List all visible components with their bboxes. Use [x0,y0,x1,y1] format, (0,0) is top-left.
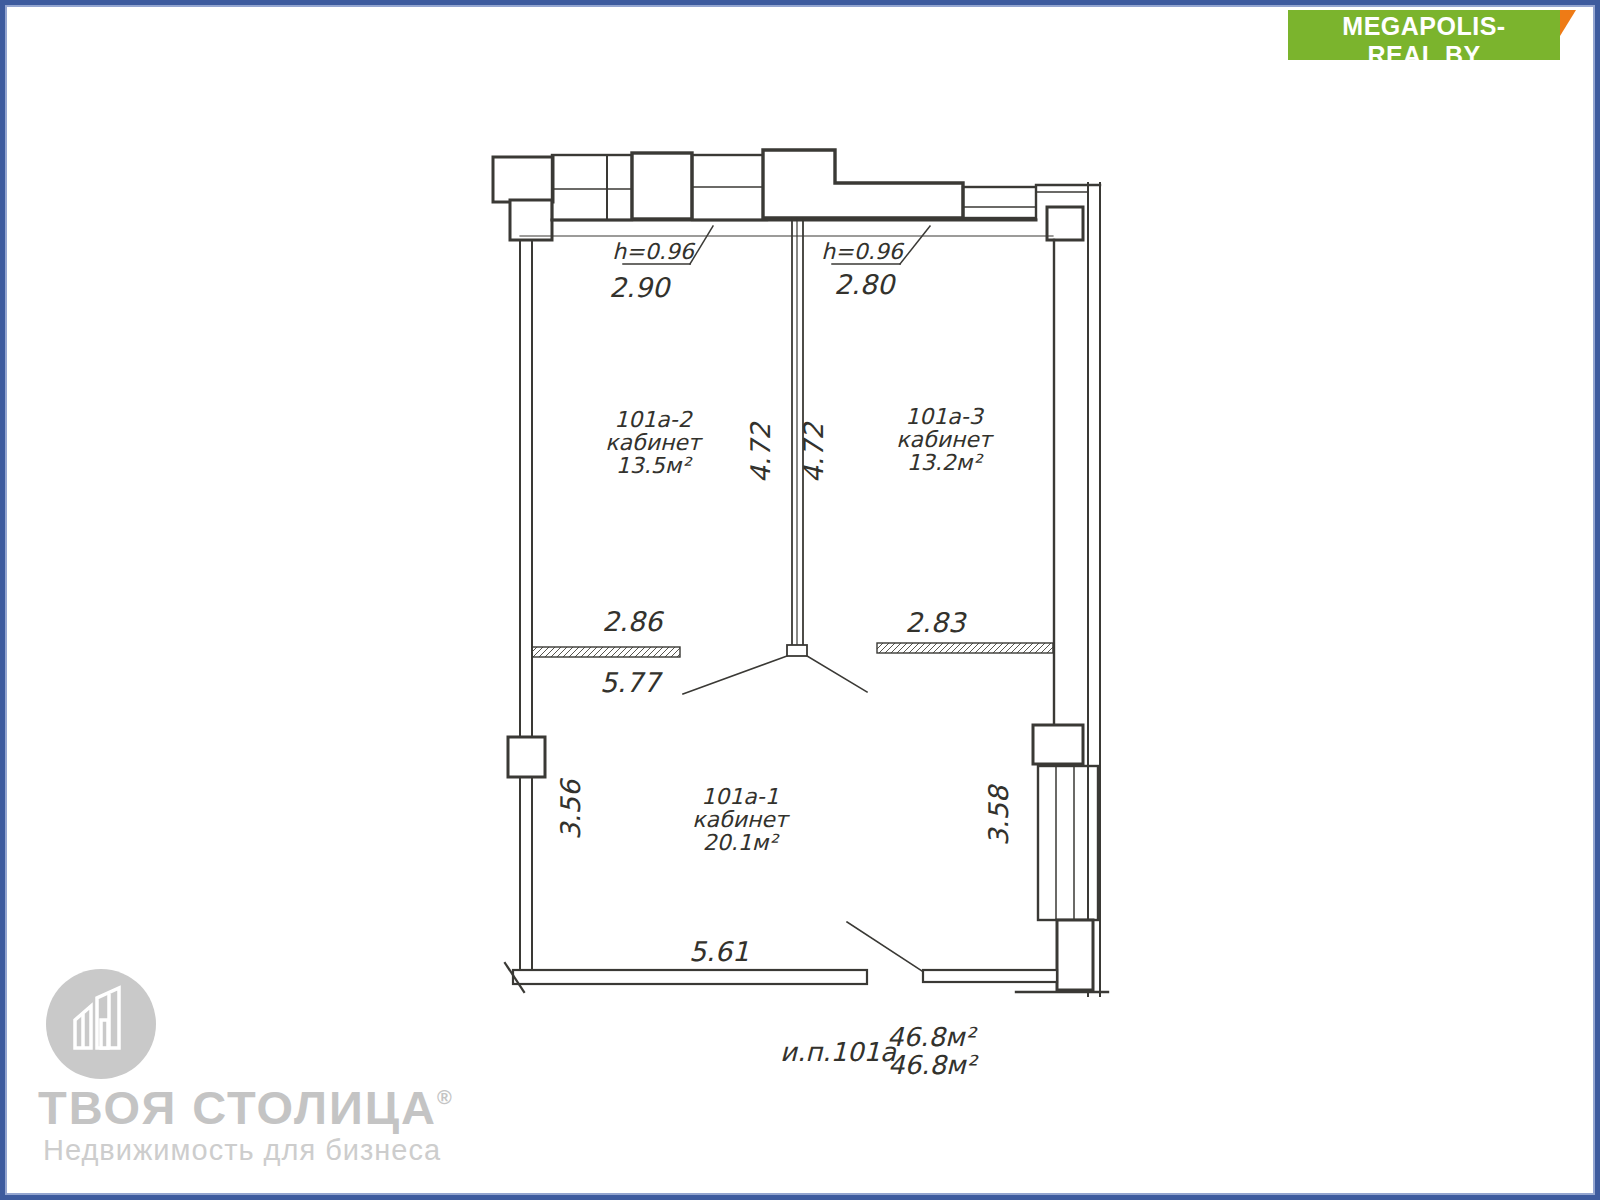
ribbon-fold-icon [1560,10,1576,36]
dimension-labels: h=0.96 h=0.96 2.90 2.80 4.72 4.72 2.86 2… [555,239,1014,967]
wall-pier [632,153,692,219]
room-101a1-number: 101а-1 [701,784,778,809]
right-window-assembly [1016,725,1108,992]
dim-room3-width: 2.83 [905,607,967,638]
room-101a3-type: кабинет [896,427,995,452]
walls [508,183,1100,996]
column-block [508,737,545,777]
room-101a1-area: 20.1м² [703,830,781,855]
room-101a2-area: 13.5м² [616,453,694,478]
plan-summary: и.п.101а 46.8м² 46.8м² [780,1022,980,1080]
dim-hall-width: 5.77 [600,667,663,698]
dim-sill-height-left: h=0.96 [612,239,695,264]
dim-room1-height-right: 3.58 [983,783,1014,846]
column-block [1033,725,1083,764]
watermark-brand-text: ТВОЯ СТОЛИЦА [38,1081,437,1134]
window-segment [552,155,632,220]
partition-left [532,647,680,657]
building-logo-icon [45,968,157,1080]
dim-window-width-right: 2.80 [834,269,897,300]
badge-title: MEGAPOLIS-REAL.BY [1288,12,1560,70]
room-101a2-number: 101а-2 [614,407,693,432]
registered-mark: ® [437,1086,452,1108]
wall-block [510,200,552,240]
watermark-brand: ТВОЯ СТОЛИЦА® [38,1080,558,1135]
listing-image-page: h=0.96 h=0.96 2.90 2.80 4.72 4.72 2.86 2… [0,0,1600,1200]
wall-block [1057,920,1093,990]
room-101a2-type: кабинет [605,430,704,455]
door-swing [683,656,787,694]
bottom-wall [505,922,1057,992]
room-101a3-area: 13.2м² [907,450,985,475]
dim-depth-right: 4.72 [798,421,829,483]
door-swing [807,656,867,692]
dim-sill-height-right: h=0.96 [821,239,904,264]
summary-area-bottom: 46.8м² [888,1050,980,1080]
dim-depth-left: 4.72 [745,421,776,483]
center-door [683,645,867,694]
room-101a3-number: 101а-3 [905,404,984,429]
room-101a1-type: кабинет [692,807,791,832]
dim-window-width-left: 2.90 [609,272,672,303]
dim-room2-width: 2.86 [602,606,665,637]
megapolis-badge: MEGAPOLIS-REAL.BY портал о коммерческой … [1288,10,1560,60]
door-swing [847,922,925,973]
badge-subtitle: портал о коммерческой недвижимости в Бел… [1288,70,1560,100]
floor-plan-drawing: h=0.96 h=0.96 2.90 2.80 4.72 4.72 2.86 2… [460,130,1120,1080]
summary-unit-label: и.п.101а [780,1037,897,1067]
wall-block [493,157,553,202]
wall-block [1047,207,1083,240]
summary-area-top: 46.8м² [887,1022,979,1052]
partition-right [877,643,1053,653]
window-segment [963,187,1036,218]
dim-room1-height-left: 3.56 [555,777,586,840]
wall-pier-stepped [763,150,963,218]
dim-room1-width: 5.61 [689,936,749,967]
watermark-tagline: Недвижимость для бизнеса [43,1134,563,1167]
